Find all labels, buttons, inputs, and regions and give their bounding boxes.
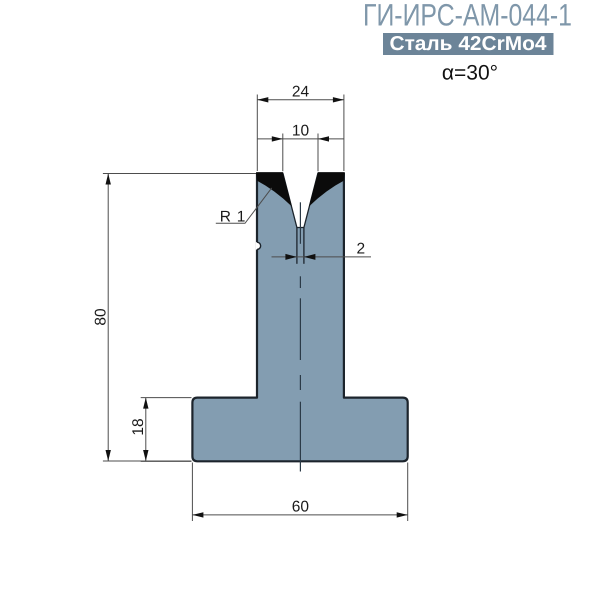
svg-text:ГИ-ИРС-АМ-044-1: ГИ-ИРС-АМ-044-1 xyxy=(363,0,572,33)
svg-text:10: 10 xyxy=(292,123,310,140)
svg-text:24: 24 xyxy=(292,83,310,100)
svg-text:1: 1 xyxy=(237,208,246,225)
svg-text:18: 18 xyxy=(130,418,147,435)
svg-text:α=30°: α=30° xyxy=(442,62,498,85)
svg-text:R: R xyxy=(220,208,231,225)
svg-text:2: 2 xyxy=(356,240,365,257)
svg-text:80: 80 xyxy=(93,308,110,326)
svg-text:60: 60 xyxy=(292,499,310,516)
svg-text:Сталь 42CrMo4: Сталь 42CrMo4 xyxy=(390,33,548,55)
